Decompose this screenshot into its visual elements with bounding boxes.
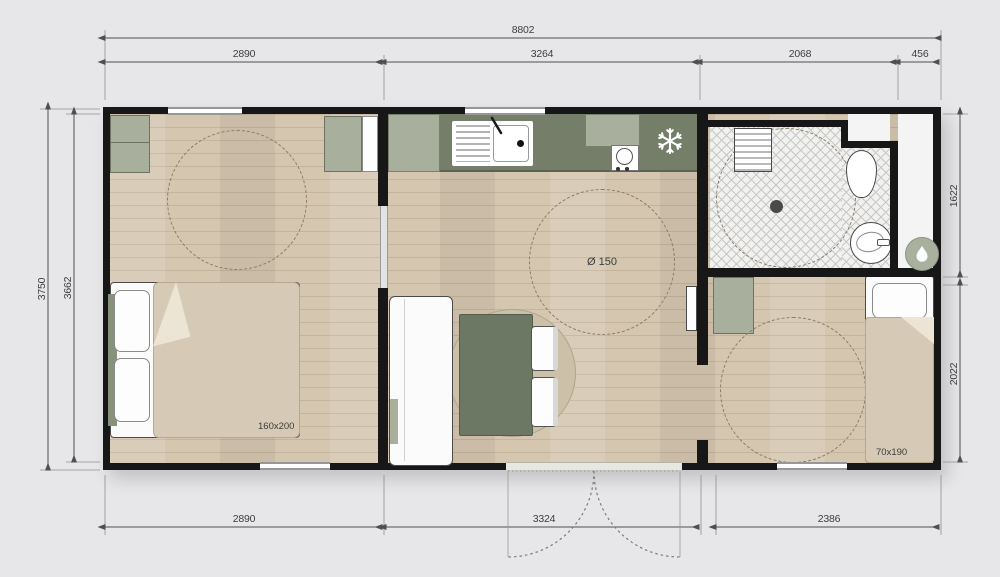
sink-drain-dot [517, 140, 524, 147]
entrance-bay-door [506, 462, 682, 470]
dining-chair [531, 326, 558, 371]
stove-knob [616, 167, 620, 171]
wardrobe-left [110, 115, 150, 173]
dim-top-seg-4: 456 [912, 48, 929, 60]
dining-table [459, 314, 533, 436]
bathroom-bottom-wall [697, 268, 941, 277]
dim-bottom-seg-1: 2890 [233, 513, 256, 525]
kitchen-cabinet-upper [585, 114, 640, 147]
washbasin-tap [877, 239, 890, 246]
dim-bottom-seg-2: 3324 [533, 513, 556, 525]
window-kitchen [465, 107, 545, 115]
pillow [872, 283, 927, 319]
wall-niche [848, 114, 890, 141]
turning-circle-bedroom1 [167, 130, 307, 270]
kitchen-sink-unit [452, 121, 533, 166]
pillow [114, 358, 150, 422]
bed-double-size-label: 160x200 [258, 421, 294, 432]
wardrobe-bedroom1 [324, 116, 362, 172]
bathroom-right-wall [890, 141, 898, 268]
window-bedroom1-bottom [260, 462, 330, 470]
dim-top-seg-1: 2890 [233, 48, 256, 60]
shower-seat [734, 128, 772, 172]
fridge-snowflake-icon [655, 126, 685, 156]
partition-bedroom1-upper [378, 113, 388, 206]
kitchen-cabinet-left [388, 114, 440, 172]
dim-bottom-seg-3: 2386 [818, 513, 841, 525]
sofa-cushion [390, 399, 398, 444]
stove-knob [625, 167, 629, 171]
partition-bedroom2-stub [697, 440, 708, 468]
stove-burner [616, 148, 633, 165]
dim-left-inner: 3662 [62, 277, 74, 300]
shower-drain [770, 200, 783, 213]
window-bedroom2-bottom [777, 462, 847, 470]
bed-single-blanket [865, 317, 934, 463]
bed-single-size-label: 70x190 [876, 447, 907, 458]
partition-bathroom-left [697, 113, 708, 365]
washbasin [850, 222, 892, 264]
dim-top-seg-2: 3264 [531, 48, 554, 60]
wardrobe-bedroom1-door [362, 116, 378, 172]
dim-top-overall: 8802 [512, 24, 535, 36]
sink-drainboard [456, 125, 490, 162]
window-bedroom1-top [168, 107, 242, 115]
wardrobe-bedroom2 [713, 277, 754, 334]
kitchen-stove [611, 145, 639, 171]
bathroom-top-wall [708, 120, 848, 127]
dining-chair [531, 377, 558, 427]
partition-bedroom1-lower [378, 288, 388, 463]
sofa [389, 296, 453, 466]
dim-right-seg-2: 2022 [948, 363, 960, 386]
pillow [114, 290, 150, 352]
dim-left-outer: 3750 [36, 278, 48, 301]
water-heater [905, 237, 939, 271]
floor-plan-canvas: 160x200 Ø 150 [0, 0, 1000, 577]
sliding-door-leaf-bedroom2 [686, 286, 697, 331]
wardrobe-shelf-divider [111, 142, 149, 143]
water-drop-icon [912, 244, 932, 264]
turning-circle-bedroom2 [720, 317, 866, 463]
dim-right-seg-1: 1622 [948, 185, 960, 208]
pocket-door-bedroom1 [380, 206, 388, 288]
dim-top-seg-3: 2068 [789, 48, 812, 60]
sofa-seat-line [404, 299, 405, 461]
turning-circle-label: Ø 150 [587, 256, 617, 268]
bathroom-notch-wall-h [841, 141, 897, 148]
